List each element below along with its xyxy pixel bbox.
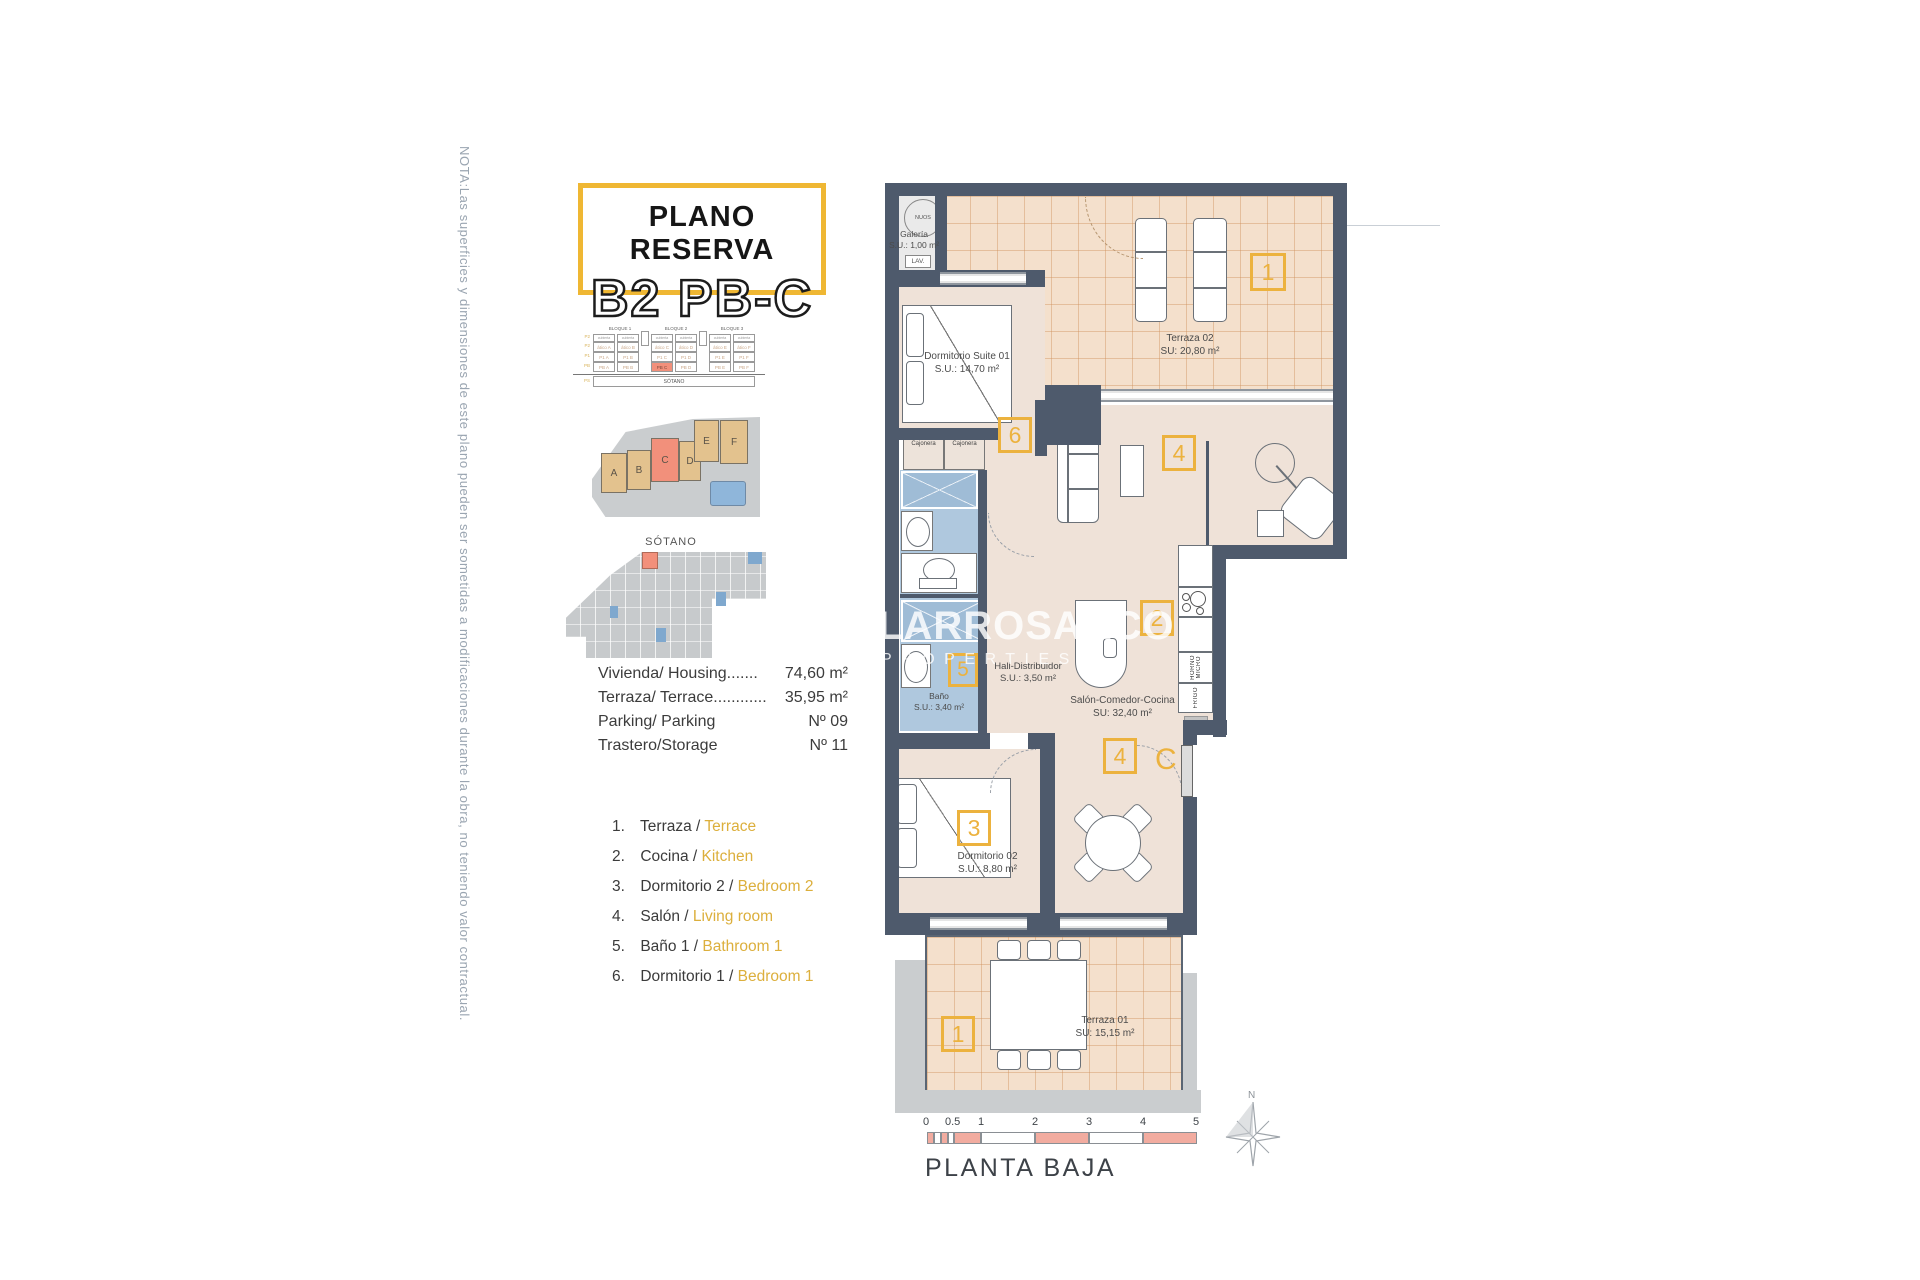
table-cell: PB B [617, 362, 639, 372]
scale-tick: 0 [923, 1116, 929, 1128]
scale-tick: 4 [1140, 1116, 1146, 1128]
boundary-line [1347, 225, 1440, 226]
table-cell: cubierta [675, 334, 697, 342]
terrace02-label: Terraza 02 SU: 20,80 m² [1125, 333, 1255, 358]
window-sliding [1100, 389, 1333, 402]
tv-unit [1120, 445, 1144, 497]
scale-segment [1143, 1132, 1197, 1144]
table-cell: ático D [675, 342, 697, 352]
stat-label: Trastero/Storage [598, 734, 717, 758]
suite-label: Dormitorio Suite 01 S.U.: 14,70 m² [903, 351, 1031, 376]
burner [1196, 607, 1204, 615]
building-f: F [720, 420, 748, 464]
pool [710, 481, 746, 506]
basement-highlight-storage [642, 552, 658, 569]
table-cell: cubierta [733, 334, 755, 342]
kitchen-counter [1178, 545, 1213, 587]
table-cell: P1 E [709, 352, 731, 362]
table-cell: cubierta [593, 334, 615, 342]
outdoor-chair [997, 940, 1021, 960]
outdoor-chair [997, 1050, 1021, 1070]
room-area: S.U.: 3,40 m² [899, 702, 979, 713]
room-name: Baño [899, 691, 979, 702]
legend-es: Salón / [640, 908, 688, 925]
sun-lounger [1193, 218, 1227, 322]
row-label: P2 [577, 334, 590, 339]
cajonera-label: Cajonera [945, 441, 984, 447]
plan-title: PLANO RESERVA [583, 201, 821, 267]
legend-es: Dormitorio 1 / [640, 968, 733, 985]
legend-number: 5. [612, 932, 636, 962]
room-marker-bathroom: 5 [948, 653, 978, 687]
square-table [1257, 510, 1284, 537]
table-cell: ático B [617, 342, 639, 352]
scale-segment [1035, 1132, 1089, 1144]
round-side-table [1255, 443, 1295, 483]
stat-value: 35,95 m² [785, 686, 848, 710]
outdoor-chair [1057, 1050, 1081, 1070]
kitchen-counter [1178, 617, 1213, 652]
table-cell: PB E [709, 362, 731, 372]
table-cell-selected-unit: PB C [651, 362, 673, 372]
wall [885, 428, 1000, 440]
pillow [897, 784, 917, 824]
floor-plan: NUOS LAV. Cajonera Cajonera Baño S.U.: 3… [885, 183, 1455, 1123]
galeria-label: Galería S.U.: 1,00 m² [883, 229, 945, 250]
sink-icon [906, 517, 930, 547]
legend-item: 1. Terraza / Terrace [612, 812, 813, 842]
stat-value: Nº 09 [808, 710, 848, 734]
scale-segment [981, 1132, 1035, 1144]
floorplan-page: NOTA:Las superficies y dimensiones de es… [0, 0, 1920, 1280]
scale-segment [941, 1132, 948, 1144]
legend-es: Terraza / [640, 818, 700, 835]
legend-number: 3. [612, 872, 636, 902]
scale-tick: 0.5 [945, 1116, 960, 1128]
room-legend: 1. Terraza / Terrace 2. Cocina / Kitchen… [612, 812, 813, 992]
scale-segment [1089, 1132, 1143, 1144]
cajonera-cell: Cajonera [944, 438, 985, 470]
stair-tower [641, 331, 649, 346]
legend-item: 5. Baño 1 / Bathroom 1 [612, 932, 813, 962]
shower-tray [901, 471, 978, 509]
legend-en: Bathroom 1 [702, 938, 782, 955]
oven-micro-cell: HORNO MICRO [1178, 652, 1213, 683]
legend-item: 2. Cocina / Kitchen [612, 842, 813, 872]
bloque-label: BLOQUE 3 [709, 326, 755, 331]
room-marker-kitchen: 2 [1140, 600, 1174, 636]
tv-wall-partition [1206, 441, 1209, 545]
surface-stats: Vivienda/ Housing....... 74,60 m² Terraz… [598, 662, 848, 758]
sotano-row: SÓTANO [593, 376, 755, 387]
legend-es: Cocina / [640, 848, 697, 865]
table-cell: ático A [593, 342, 615, 352]
wall [978, 470, 987, 733]
oven-label: HORNO [1190, 655, 1196, 680]
table-cell: cubierta [617, 334, 639, 342]
table-cell: P1 A [593, 352, 615, 362]
block-availability-table: BLOQUE 1 BLOQUE 2 BLOQUE 3 cubierta cubi… [593, 326, 761, 392]
room-name: Galería [883, 229, 945, 240]
wall [1213, 545, 1347, 559]
basement-label: SÓTANO [636, 536, 706, 548]
scale-segment [927, 1132, 934, 1144]
micro-label: MICRO [1196, 656, 1202, 679]
row-label: PB [577, 363, 590, 368]
legend-item: 6. Dormitorio 1 / Bedroom 1 [612, 962, 813, 992]
legend-en: Bedroom 1 [738, 968, 814, 985]
dining-table-round [1085, 815, 1141, 871]
wall [1183, 797, 1197, 930]
room-area: SU: 15,15 m² [1045, 1028, 1165, 1041]
stat-value: 74,60 m² [785, 662, 848, 686]
legend-item: 3. Dormitorio 2 / Bedroom 2 [612, 872, 813, 902]
room-area: S.U.: 3,50 m² [978, 673, 1078, 685]
entry-door-leaf [1181, 745, 1193, 797]
outdoor-chair [1027, 940, 1051, 960]
unit-letter: C [1155, 743, 1177, 777]
site-plan: A B C D E F [592, 417, 760, 517]
bathroom-label: Baño S.U.: 3,40 m² [899, 691, 979, 712]
scale-tick: 1 [978, 1116, 984, 1128]
burner [1190, 591, 1206, 607]
terrace01-label: Terraza 01 SU: 15,15 m² [1045, 1015, 1165, 1040]
wall [1333, 183, 1347, 559]
stat-label: Vivienda/ Housing....... [598, 662, 758, 686]
outdoor-chair [1027, 1050, 1051, 1070]
wall [885, 183, 1347, 196]
basement-stair [716, 592, 726, 606]
stair-tower [699, 331, 707, 346]
toilet-tank [919, 578, 957, 589]
room-marker-bedroom1: 6 [998, 417, 1032, 453]
legend-en: Living room [693, 908, 773, 925]
window [930, 917, 1027, 930]
table-cell: P1 C [651, 352, 673, 362]
legend-es: Baño 1 / [640, 938, 698, 955]
bloque-label: BLOQUE 2 [653, 326, 699, 331]
unit-code: B2 PB-C [583, 269, 821, 329]
table-cell: P1 B [617, 352, 639, 362]
table-cell: ático F [733, 342, 755, 352]
lounger-seam [1194, 251, 1226, 253]
scale-tick: 5 [1193, 1116, 1199, 1128]
room-name: Dormitorio 02 [930, 851, 1045, 864]
table-cell: ático C [651, 342, 673, 352]
room-name: Terraza 01 [1045, 1015, 1165, 1028]
room-area: S.U.: 8,80 m² [930, 864, 1045, 877]
table-cell: P1 D [675, 352, 697, 362]
scale-tick: 3 [1086, 1116, 1092, 1128]
wall [1213, 545, 1226, 737]
room-area: SU: 32,40 m² [1050, 708, 1195, 721]
burner [1182, 593, 1190, 601]
north-label: N [1248, 1090, 1255, 1101]
title-box: PLANO RESERVA B2 PB-C [578, 183, 826, 295]
hall-label: Hall-Distribuidor S.U.: 3,50 m² [978, 661, 1078, 685]
wall [885, 733, 990, 749]
wall [1045, 385, 1101, 445]
row-label: PS [577, 378, 590, 383]
burner [1182, 603, 1191, 612]
room-marker-terrace02: 1 [1250, 253, 1286, 291]
site-band [1183, 973, 1197, 1113]
window [940, 272, 1026, 285]
ground-line [573, 374, 765, 375]
sink-icon [904, 651, 928, 683]
disclaimer-note: NOTA:Las superficies y dimensiones de es… [452, 146, 472, 888]
table-cell: PB D [675, 362, 697, 372]
sofa-seam [1068, 488, 1098, 490]
window [1060, 917, 1167, 930]
site-band [895, 1090, 1201, 1113]
room-area: S.U.: 14,70 m² [903, 364, 1031, 377]
basement-plan: SÓTANO [566, 536, 766, 658]
row-label: P2 [577, 343, 590, 348]
building-e: E [694, 420, 719, 462]
legend-en: Bedroom 2 [738, 878, 814, 895]
stat-label: Parking/ Parking [598, 710, 715, 734]
cajonera-cell: Cajonera [903, 438, 944, 470]
table-cell: ático E [709, 342, 731, 352]
room-marker-dining: 4 [1103, 738, 1137, 774]
table-cell: cubierta [651, 334, 673, 342]
room-marker-livingroom: 4 [1162, 435, 1196, 471]
wall [885, 183, 899, 935]
cajonera-label: Cajonera [904, 441, 943, 447]
basement-stair [656, 628, 666, 642]
wall [1183, 735, 1197, 745]
room-name: Terraza 02 [1125, 333, 1255, 346]
scale-segment [934, 1132, 941, 1144]
table-cell: cubierta [709, 334, 731, 342]
room-name: Hall-Distribuidor [978, 661, 1078, 673]
room-marker-terrace01: 1 [941, 1016, 975, 1052]
room-area: SU: 20,80 m² [1125, 346, 1255, 359]
room-name: Salón-Comedor-Cocina [1050, 695, 1195, 708]
stat-label: Terraza/ Terrace............ [598, 686, 767, 710]
table-cell: PB A [593, 362, 615, 372]
bedroom2-label: Dormitorio 02 S.U.: 8,80 m² [930, 851, 1045, 876]
wall [1183, 720, 1227, 735]
building-b: B [627, 450, 651, 490]
legend-number: 2. [612, 842, 636, 872]
outdoor-chair [1057, 940, 1081, 960]
floor-name: PLANTA BAJA [925, 1154, 1116, 1183]
room-area: S.U.: 1,00 m² [883, 240, 945, 251]
wall [1040, 733, 1055, 930]
island-faucet [1103, 638, 1117, 658]
legend-number: 6. [612, 962, 636, 992]
stat-value: Nº 11 [810, 734, 848, 758]
wall [1035, 400, 1047, 456]
building-c-highlighted: C [651, 438, 679, 482]
legend-en: Terrace [704, 818, 756, 835]
scale-segment [954, 1132, 981, 1144]
washer-box: LAV. [905, 255, 931, 268]
legend-en: Kitchen [702, 848, 754, 865]
legend-es: Dormitorio 2 / [640, 878, 733, 895]
legend-number: 4. [612, 902, 636, 932]
table-cell: PB F [733, 362, 755, 372]
bloque-label: BLOQUE 1 [597, 326, 643, 331]
scale-tick: 2 [1032, 1116, 1038, 1128]
legend-number: 1. [612, 812, 636, 842]
kitchen-island [1075, 600, 1127, 688]
lounger-seam [1136, 287, 1166, 289]
legend-item: 4. Salón / Living room [612, 902, 813, 932]
table-cell: P1 F [733, 352, 755, 362]
basement-stair [610, 606, 618, 618]
row-label: P1 [577, 353, 590, 358]
lounger-seam [1194, 287, 1226, 289]
pillow [897, 828, 917, 868]
basement-shape [566, 552, 766, 658]
compass-icon: N [1222, 1090, 1284, 1168]
building-a: A [601, 453, 627, 493]
basement-stair [748, 552, 762, 564]
salon-label: Salón-Comedor-Cocina SU: 32,40 m² [1050, 695, 1195, 720]
scale-bar: 0 0.5 1 2 3 4 5 [925, 1116, 1205, 1148]
shower-tray [901, 600, 983, 642]
sofa-seam [1068, 453, 1098, 455]
room-marker-bedroom2: 3 [957, 810, 991, 846]
room-name: Dormitorio Suite 01 [903, 351, 1031, 364]
